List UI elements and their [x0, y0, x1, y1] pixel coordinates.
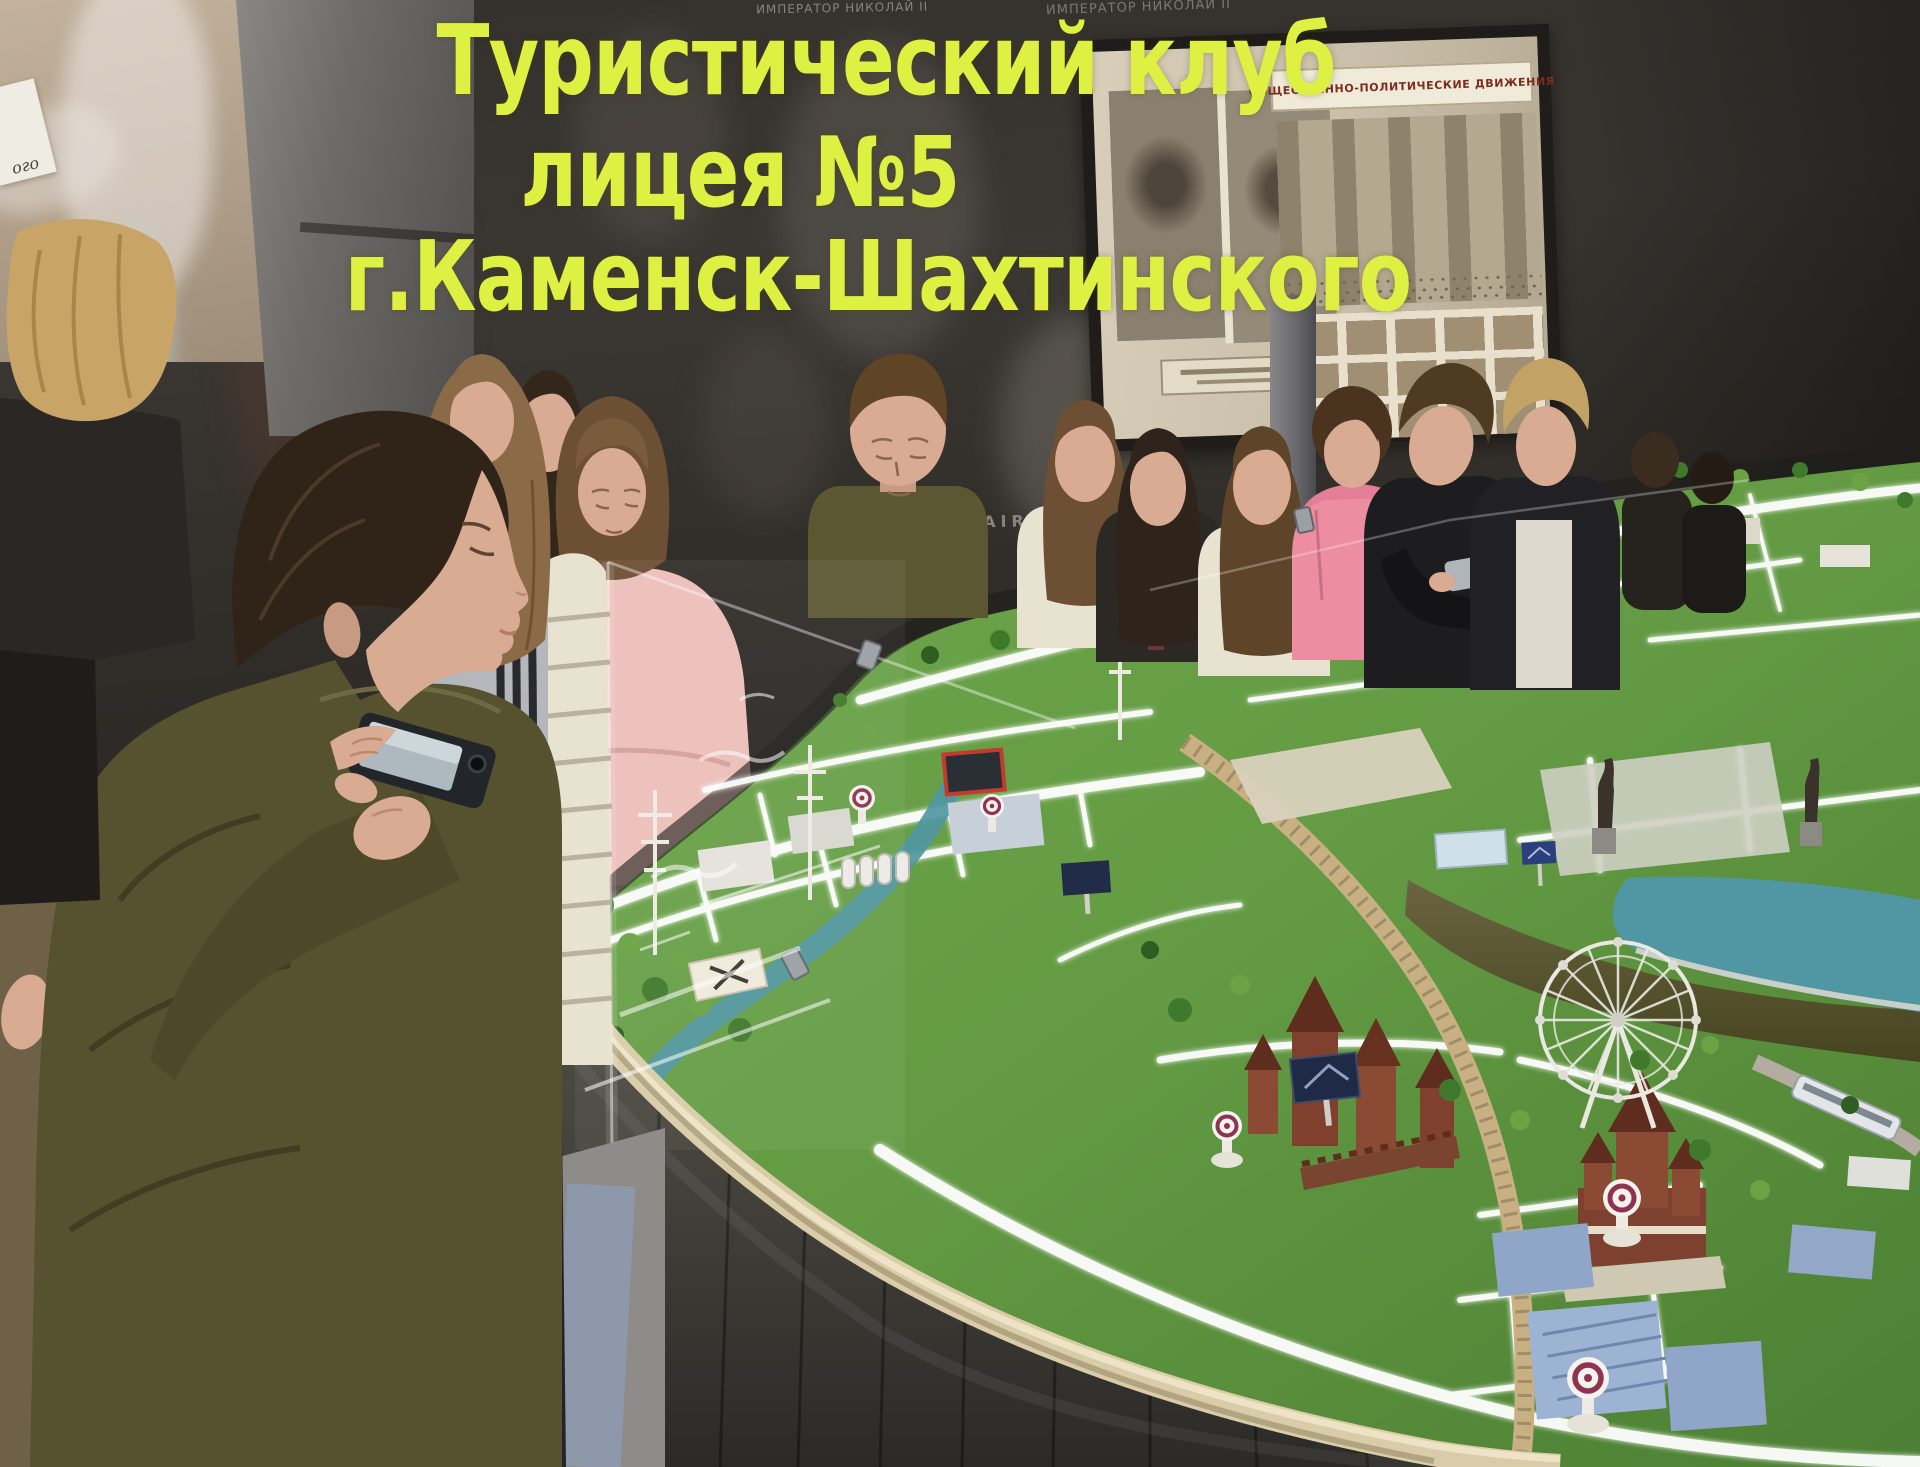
- person-right-small-1: [1622, 432, 1692, 610]
- person-left-edge: [0, 650, 100, 905]
- scene-vector: [0, 0, 1920, 1467]
- museum-scene: ого ИМПЕРАТОР НИКОЛАЙ II ИМПЕРАТОР НИКОЛ…: [0, 0, 1920, 1467]
- person-blond-back: [0, 219, 195, 660]
